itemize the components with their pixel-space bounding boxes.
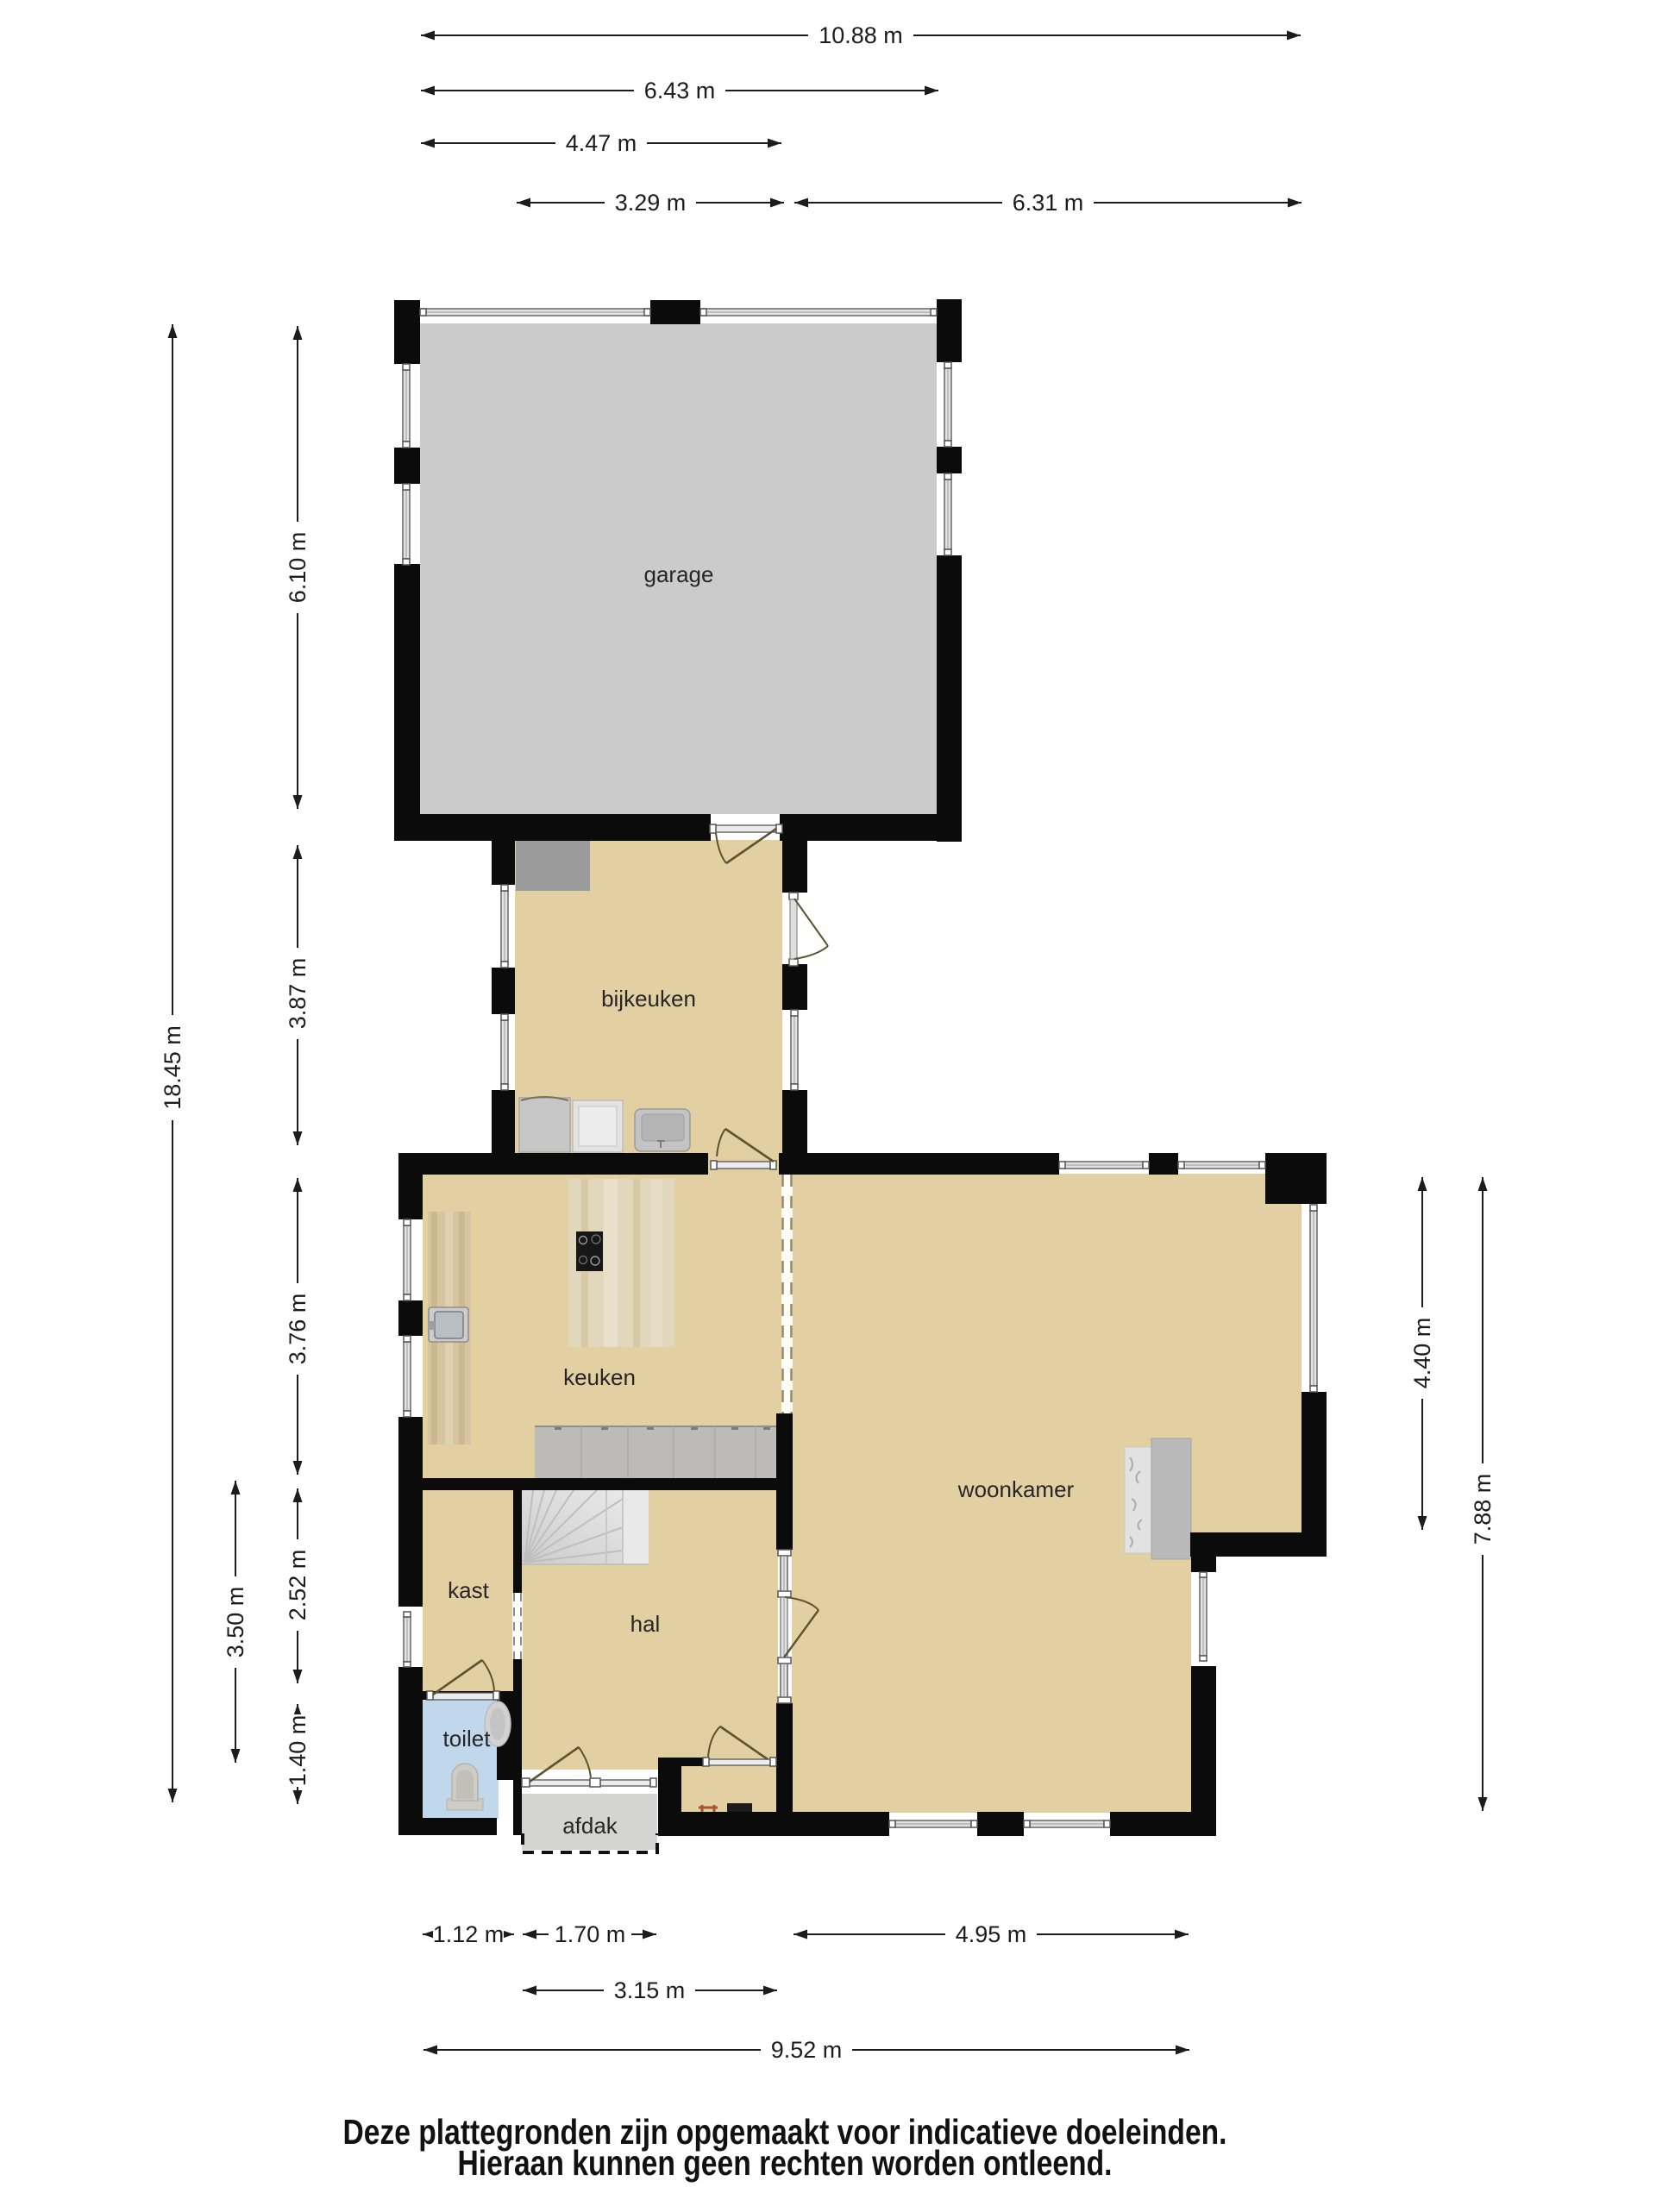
svg-text:1.12 m: 1.12 m (433, 1921, 505, 1947)
svg-text:6.10 m: 6.10 m (285, 532, 310, 604)
svg-text:afdak: afdak (562, 1813, 618, 1839)
svg-text:3.15 m: 3.15 m (614, 1977, 686, 2003)
svg-text:18.45 m: 18.45 m (160, 1025, 185, 1110)
svg-text:6.31 m: 6.31 m (1013, 190, 1084, 216)
svg-text:hal: hal (630, 1611, 661, 1637)
svg-text:3.29 m: 3.29 m (615, 190, 687, 216)
svg-text:6.43 m: 6.43 m (644, 78, 716, 103)
svg-text:7.88 m: 7.88 m (1470, 1474, 1496, 1545)
svg-text:4.47 m: 4.47 m (566, 130, 637, 156)
svg-text:3.87 m: 3.87 m (285, 958, 310, 1030)
svg-text:3.76 m: 3.76 m (285, 1294, 310, 1365)
svg-text:4.40 m: 4.40 m (1409, 1318, 1435, 1389)
svg-text:3.50 m: 3.50 m (223, 1587, 248, 1658)
svg-text:1.70 m: 1.70 m (555, 1921, 626, 1947)
svg-text:4.95 m: 4.95 m (956, 1921, 1027, 1947)
svg-text:bijkeuken: bijkeuken (601, 986, 696, 1012)
svg-text:woonkamer: woonkamer (957, 1476, 1075, 1502)
svg-text:Hieraan kunnen geen rechten wo: Hieraan kunnen geen rechten worden ontle… (458, 2143, 1113, 2183)
svg-text:9.52 m: 9.52 m (771, 2037, 843, 2063)
svg-text:kast: kast (448, 1577, 489, 1603)
svg-text:keuken: keuken (563, 1364, 636, 1390)
svg-text:garage: garage (644, 561, 714, 587)
svg-text:2.52 m: 2.52 m (285, 1550, 310, 1621)
svg-text:1.40 m: 1.40 m (285, 1715, 310, 1787)
svg-text:10.88 m: 10.88 m (819, 22, 903, 48)
svg-text:toilet: toilet (443, 1726, 492, 1751)
